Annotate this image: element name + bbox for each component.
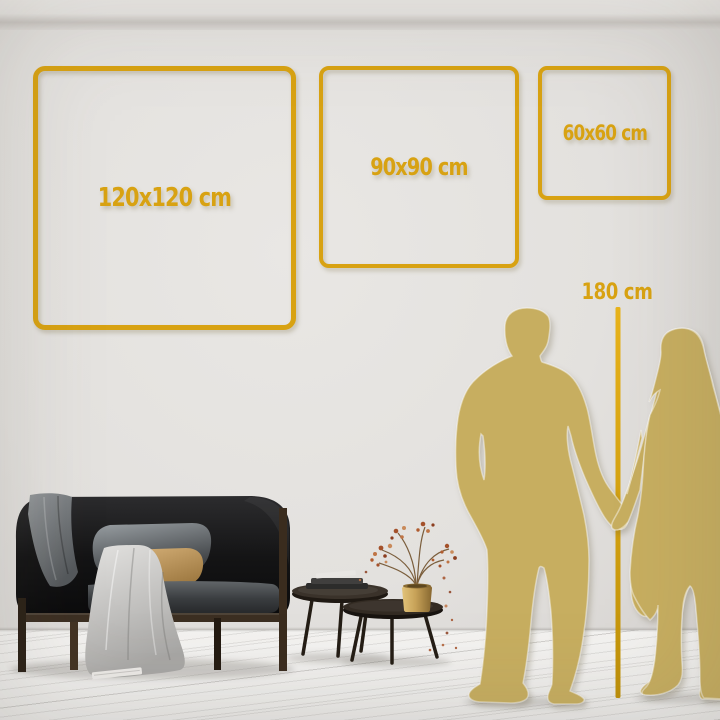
couple-silhouette (456, 308, 720, 704)
frame-120x120: 120x120 cm (33, 66, 296, 330)
book-stack (306, 570, 368, 589)
vase-opening (407, 584, 427, 588)
brass-vase (402, 586, 432, 612)
frame-60x60-label: 60x60 cm (562, 121, 647, 145)
plant-blossoms (370, 522, 457, 568)
size-guide-image: 120x120 cm 90x90 cm 60x60 cm 180 cm (0, 0, 720, 720)
frame-60x60: 60x60 cm (538, 66, 671, 200)
sofa-right-post (279, 508, 287, 671)
frame-90x90: 90x90 cm (319, 66, 519, 268)
sofa (16, 493, 290, 679)
frame-120x120-label: 120x120 cm (98, 183, 232, 213)
sofa-leg (214, 618, 221, 670)
woman-silhouette-body (627, 328, 720, 699)
plant-branches (379, 527, 449, 585)
height-ruler-label: 180 cm (568, 280, 666, 305)
frame-90x90-label: 90x90 cm (370, 153, 468, 181)
sofa-leg (18, 598, 26, 672)
man-silhouette (456, 308, 628, 704)
